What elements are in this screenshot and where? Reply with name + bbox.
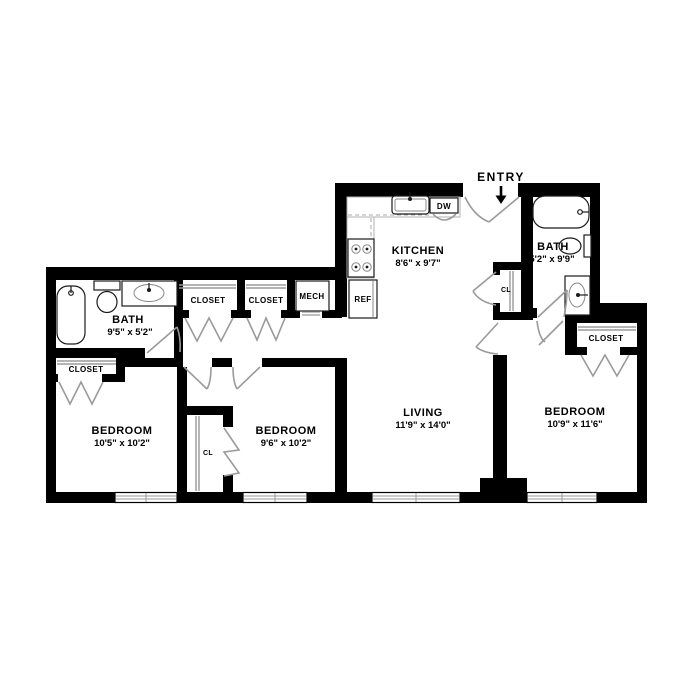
- stove: [348, 239, 374, 277]
- cl-bedroom-bifold-door: [224, 428, 239, 476]
- bedroom-middle-label: BEDROOM: [256, 425, 317, 437]
- entry-label: ENTRY: [477, 170, 525, 184]
- dw-label: DW: [437, 202, 451, 211]
- living-label: LIVING: [403, 407, 443, 419]
- wall-bedroom1-east: [177, 367, 187, 492]
- wall-corridor-a: [118, 358, 182, 367]
- entry-arrowhead-icon: [496, 196, 507, 205]
- wall-closetL-stub-left: [46, 374, 58, 382]
- entry-door: [465, 197, 519, 222]
- closet2-bifold-door: [247, 318, 285, 340]
- ref-label: REF: [354, 295, 371, 304]
- bathtub-right: [533, 196, 589, 228]
- cl-bedroom-label: CL: [203, 450, 213, 457]
- wall-closetR-left: [565, 315, 577, 355]
- wall-closet2-stub-right: [281, 310, 287, 318]
- wall-closetL-stub-right: [102, 374, 125, 382]
- wall-bathR-bottom-stub: [521, 308, 537, 318]
- wall-left-outer: [46, 267, 56, 503]
- vanity-sink-right: [565, 276, 590, 315]
- bath-left-dims: 9'5" x 5'2": [107, 327, 152, 338]
- wall-closetR-stub-right: [620, 347, 637, 355]
- living-dims: 11'9" x 14'0": [395, 420, 450, 431]
- wall-living-bedroom-right: [493, 355, 507, 492]
- floor-plan-page: ENTRY KITCHEN 8'6" x 9'7" LIVING 11'9" x…: [0, 0, 697, 697]
- window-bedroom-left: [115, 493, 177, 503]
- wall-corridor-b: [212, 358, 232, 367]
- bath-left-label: BATH: [112, 314, 144, 326]
- toilet-left: [94, 281, 120, 313]
- wall-clBedroom-stub-bottom: [223, 475, 233, 492]
- bedroom-left-door: [184, 367, 211, 389]
- closet1-bifold-door: [185, 318, 233, 341]
- wall-kitchen-top: [335, 183, 463, 197]
- closet-left-label: CLOSET: [69, 365, 104, 374]
- kitchen-label: KITCHEN: [392, 245, 444, 257]
- bedroom-middle-door: [233, 367, 260, 389]
- window-bedroom-right: [527, 493, 597, 503]
- bath-right-door: [538, 290, 567, 317]
- bedroom-right-label: BEDROOM: [545, 406, 606, 418]
- window-bedroom-middle: [243, 493, 307, 503]
- kitchen-dims: 8'6" x 9'7": [395, 258, 440, 269]
- closet2-label: CLOSET: [249, 296, 284, 305]
- wall-kitchen-left: [335, 188, 347, 317]
- bedroom-left-dims: 10'5" x 10'2": [94, 438, 150, 449]
- living-hall-door: [476, 323, 498, 354]
- bedroom-right-dims: 10'9" x 11'6": [547, 419, 602, 430]
- closet-left-bifold-door: [59, 382, 103, 404]
- wall-pillar-living-se: [480, 478, 527, 493]
- bath-right-label: BATH: [537, 241, 569, 253]
- wall-clBedroom-top: [177, 406, 233, 415]
- wall-closetR-stub-left: [577, 347, 587, 355]
- wall-bathL-bottom: [46, 348, 145, 358]
- bedroom-left-label: BEDROOM: [92, 425, 153, 437]
- closet1-label: CLOSET: [191, 296, 226, 305]
- wall-closet1-stub-right: [231, 310, 237, 318]
- closet-bedroom-right-bifold-door: [581, 355, 629, 376]
- mech-label: MECH: [299, 292, 324, 301]
- wall-closet1-stub-left: [183, 310, 189, 318]
- bath-right-dims: 5'2" x 9'9": [529, 254, 574, 265]
- wall-top-right-of-entry: [518, 183, 600, 197]
- bathtub-left: [57, 286, 85, 344]
- wall-closet1-closet2: [237, 278, 245, 318]
- vanity-sink-left: [122, 281, 177, 306]
- wall-closet2-stub-left: [245, 310, 251, 318]
- wall-right-outer: [637, 303, 647, 503]
- cl-entry-label: CL: [501, 287, 511, 294]
- entry-closet-door: [473, 272, 496, 305]
- floor-plan-canvas: ENTRY KITCHEN 8'6" x 9'7" LIVING 11'9" x…: [0, 0, 697, 697]
- closet-bedroom-right-label: CLOSET: [589, 334, 624, 343]
- wall-clBedroom-stub-top: [223, 415, 233, 427]
- window-living: [372, 493, 460, 503]
- wall-entry-closet-top: [493, 262, 533, 270]
- wall-left-section-top: [46, 267, 347, 280]
- wall-corridor-c: [262, 358, 347, 367]
- bedroom-right-door: [537, 321, 563, 345]
- wall-bedroom2-living: [335, 360, 347, 492]
- bedroom-middle-dims: 9'6" x 10'2": [261, 438, 312, 449]
